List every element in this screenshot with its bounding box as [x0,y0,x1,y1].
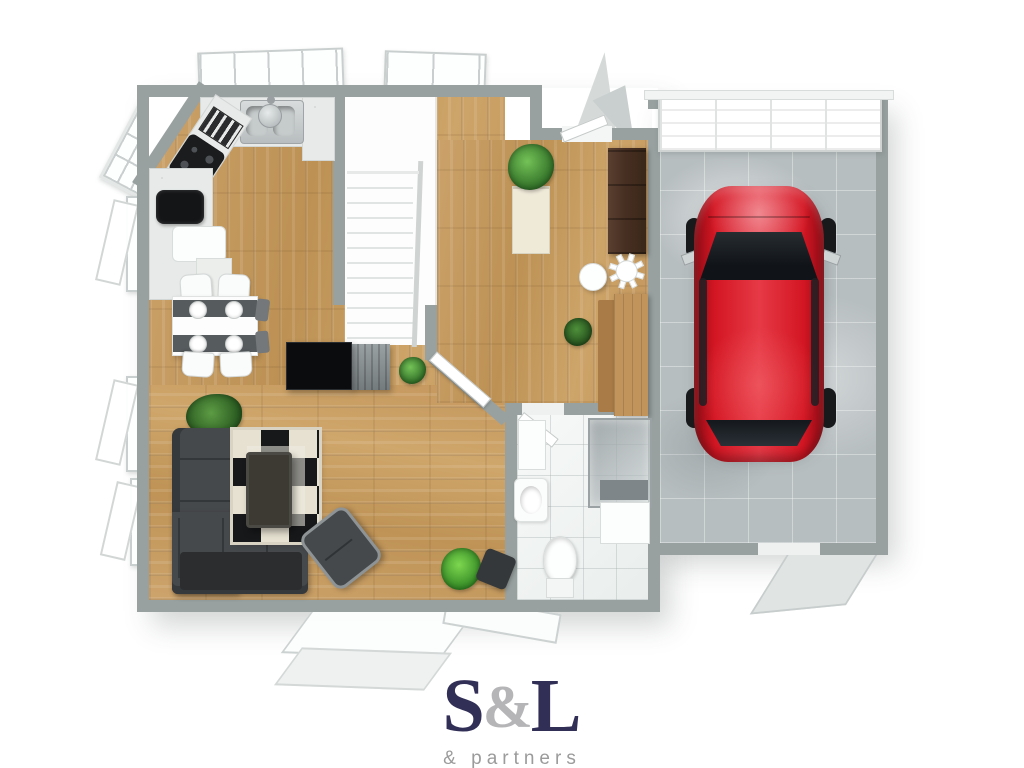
logo-letter-s: S [443,664,485,748]
window-sash [100,481,142,561]
table-runner [173,335,257,352]
kitchen-canister [258,104,282,128]
car [694,186,824,462]
dining-table [172,296,258,356]
basin-bowl [520,486,542,514]
plate [189,301,207,319]
car-rear-window [706,420,812,446]
brand-logo: S&L & partners [0,668,1024,768]
stair-treads [347,177,413,339]
armchair-seam [325,539,353,562]
plate [225,301,243,319]
dining-chair-side [255,330,270,353]
logo-letter-l: L [531,664,582,748]
window-sash [95,379,139,466]
side-table [579,263,607,291]
car-side-window [699,278,707,406]
toilet [540,536,578,600]
plate [189,335,207,353]
dining-chair-side [255,298,271,321]
garage-door [658,96,882,152]
bathroom-cabinet [600,502,650,544]
kitchen-cabinet [302,97,335,161]
kitchen-appliance [172,226,226,262]
shower-shelf [600,480,648,500]
plate [225,335,243,353]
stair-landing-edge [347,171,419,174]
sofa-chaise [180,552,302,590]
faucet-icon [267,96,275,104]
floor-plan-render: S&L & partners [0,0,1024,768]
car-windshield [700,232,818,280]
window-sash [95,199,139,286]
car-side-window [811,278,819,406]
car-hood-line [708,216,810,218]
tv [286,342,352,390]
drawer-cabinet [512,186,550,254]
bathroom-panel [518,420,546,470]
washbasin [514,478,548,522]
garage-door-rail [644,90,894,100]
wardrobe [608,148,646,254]
toilet-tank [546,578,574,598]
wall-jog [530,85,542,140]
tv-stone-wall [350,344,390,390]
wall-garage-right [876,97,888,555]
logo-tagline: & partners [0,748,1024,768]
coffee-machine [156,190,204,224]
table-runner [173,300,257,317]
logo-wordmark: S&L [0,668,1024,744]
bathroom-doorway-gap [522,403,564,415]
desk [614,294,648,416]
wall-bottom [137,600,660,612]
coffee-table [246,452,292,528]
toilet-bowl [543,536,577,582]
dining-chair [219,351,252,378]
stair-railing [412,161,423,347]
staircase [345,97,437,345]
logo-ampersand: & [483,674,533,740]
garage-doorway-gap [758,543,820,555]
dining-chair [181,351,215,378]
